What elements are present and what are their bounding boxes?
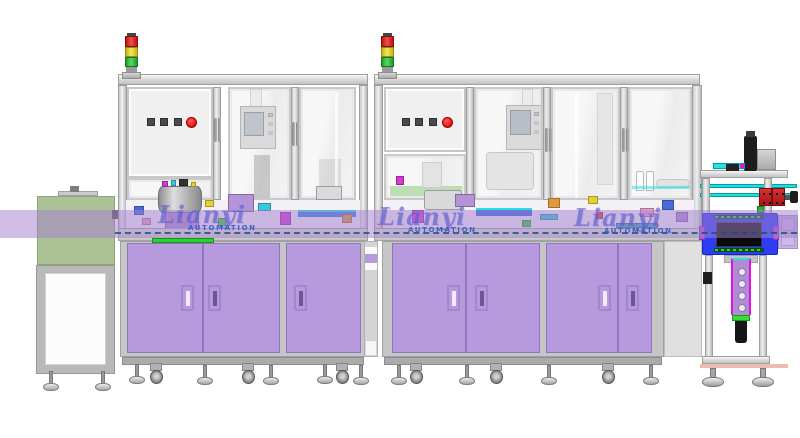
leveling-foot	[390, 365, 408, 386]
leveling-foot-large	[751, 368, 775, 388]
leveling-foot	[458, 365, 476, 386]
station-slider-block	[726, 164, 739, 171]
door-handle-slot	[181, 285, 194, 311]
station-top-rail	[700, 170, 788, 178]
door-handle-bar	[292, 122, 295, 146]
hmi-buttons	[534, 112, 539, 116]
panel-button	[402, 118, 410, 126]
bearing-block-red	[772, 188, 785, 206]
emergency-stop-button	[442, 117, 453, 128]
component-block	[396, 176, 404, 185]
machine2-base	[384, 357, 662, 365]
component-block	[316, 186, 342, 200]
infeed-stand-panel	[45, 273, 106, 365]
tower-pedestal	[122, 72, 141, 79]
component-block	[191, 182, 196, 187]
panel-button	[147, 118, 155, 126]
panel-button	[415, 118, 423, 126]
infeed-top-cap	[70, 186, 79, 192]
caster-wheel	[148, 363, 165, 386]
glass-reflection	[335, 93, 338, 198]
hmi-buttons	[268, 113, 273, 117]
door-handle-bar	[626, 128, 629, 152]
machine1-top-rail	[118, 74, 368, 85]
component-block	[548, 198, 560, 208]
caster-wheel	[240, 363, 257, 386]
junction-stripe	[365, 247, 377, 254]
machine2-signal-tower	[381, 33, 394, 79]
interior-silhouette	[597, 93, 613, 185]
machine1-window-3	[299, 87, 356, 200]
green-light	[381, 57, 394, 67]
panel-button	[429, 118, 437, 126]
machine1-signal-tower	[125, 33, 138, 79]
hmi-screen	[510, 110, 531, 135]
red-light	[381, 36, 394, 47]
junction-stripe	[365, 263, 377, 270]
belt-conveyor-green	[152, 238, 214, 243]
leveling-foot	[94, 371, 112, 392]
machine2-window-4	[628, 87, 692, 200]
gripper-arm	[731, 258, 751, 315]
hand-knob	[790, 191, 798, 203]
component-block	[162, 181, 168, 187]
interior-silhouette	[422, 162, 442, 188]
green-light	[125, 57, 138, 67]
door-handle-slot	[294, 285, 307, 311]
hmi-screen	[244, 112, 264, 136]
yellow-light	[381, 47, 394, 57]
door-handle-slot	[447, 285, 460, 311]
machine2-side-panel	[664, 241, 702, 357]
station-magenta-dot	[740, 164, 744, 168]
machine2-top-rail	[374, 74, 700, 85]
suction-cylinder	[735, 321, 747, 343]
station-motor	[744, 136, 757, 171]
caster-wheel	[600, 363, 617, 386]
leveling-foot	[262, 365, 280, 386]
machine2-window-3	[551, 87, 620, 200]
component-block	[455, 194, 475, 207]
arm-hole	[738, 292, 746, 300]
component-block	[588, 196, 598, 204]
station-motor-cap	[746, 131, 755, 137]
component-block	[171, 180, 176, 186]
conveyor-dotted-line	[115, 232, 797, 234]
machine1-control-panel	[127, 87, 213, 178]
component-block	[205, 200, 214, 207]
caster-wheel	[408, 363, 425, 386]
glass-reflection	[575, 93, 578, 198]
panel-button	[160, 118, 168, 126]
red-light	[125, 36, 138, 47]
caster-wheel	[488, 363, 505, 386]
junction-notch	[366, 341, 376, 355]
station-lower-post	[705, 255, 713, 361]
caster-wheel	[334, 363, 351, 386]
arm-hole	[738, 268, 746, 276]
machine2-mullion	[466, 87, 474, 200]
door-handle-bar	[214, 118, 217, 142]
leveling-foot	[642, 365, 660, 386]
door-handle-slot	[475, 285, 488, 311]
inspection-box-led-strip	[714, 248, 764, 252]
door-handle-slot	[208, 285, 221, 311]
machine1-window-2	[228, 87, 291, 200]
door-handle-slot	[626, 285, 639, 311]
bearing-block-red	[759, 188, 772, 206]
arm-hole	[738, 304, 746, 312]
leveling-foot	[316, 364, 334, 385]
leveling-foot	[352, 365, 370, 386]
interior-rail-cyan	[632, 186, 692, 189]
tower-pedestal	[378, 72, 397, 79]
component-block	[179, 179, 188, 186]
interior-tank	[486, 152, 534, 190]
station-lower-post	[759, 255, 767, 361]
door-handle-bar	[218, 118, 221, 142]
component-block	[662, 200, 674, 210]
door-handle-bar	[549, 128, 552, 152]
station-bottom-rail	[702, 356, 770, 364]
door-handle-slot	[598, 285, 611, 311]
panel-button	[174, 118, 182, 126]
leveling-foot	[128, 364, 146, 385]
leveling-foot-large	[701, 368, 725, 388]
machine1-mullion	[213, 87, 221, 200]
leveling-foot	[42, 371, 60, 392]
interior-silhouette	[254, 155, 270, 200]
station-black-box	[703, 272, 712, 284]
emergency-stop-button	[186, 117, 197, 128]
door-handle-bar	[622, 128, 625, 152]
leveling-foot	[196, 365, 214, 386]
leveling-foot	[540, 365, 558, 386]
machine2-control-panel	[384, 87, 466, 152]
machine2-window-2	[474, 87, 543, 200]
assembly-line-rendering: Lianyi AUTOMATION Lianyi AUTOMATION Lian…	[0, 0, 800, 438]
door-handle-bar	[296, 122, 299, 146]
bowl-feeder-drum	[158, 186, 202, 213]
arm-hole	[738, 280, 746, 288]
station-bracket	[757, 149, 776, 170]
yellow-light	[125, 47, 138, 57]
junction-stripe	[365, 254, 377, 263]
door-handle-bar	[545, 128, 548, 152]
